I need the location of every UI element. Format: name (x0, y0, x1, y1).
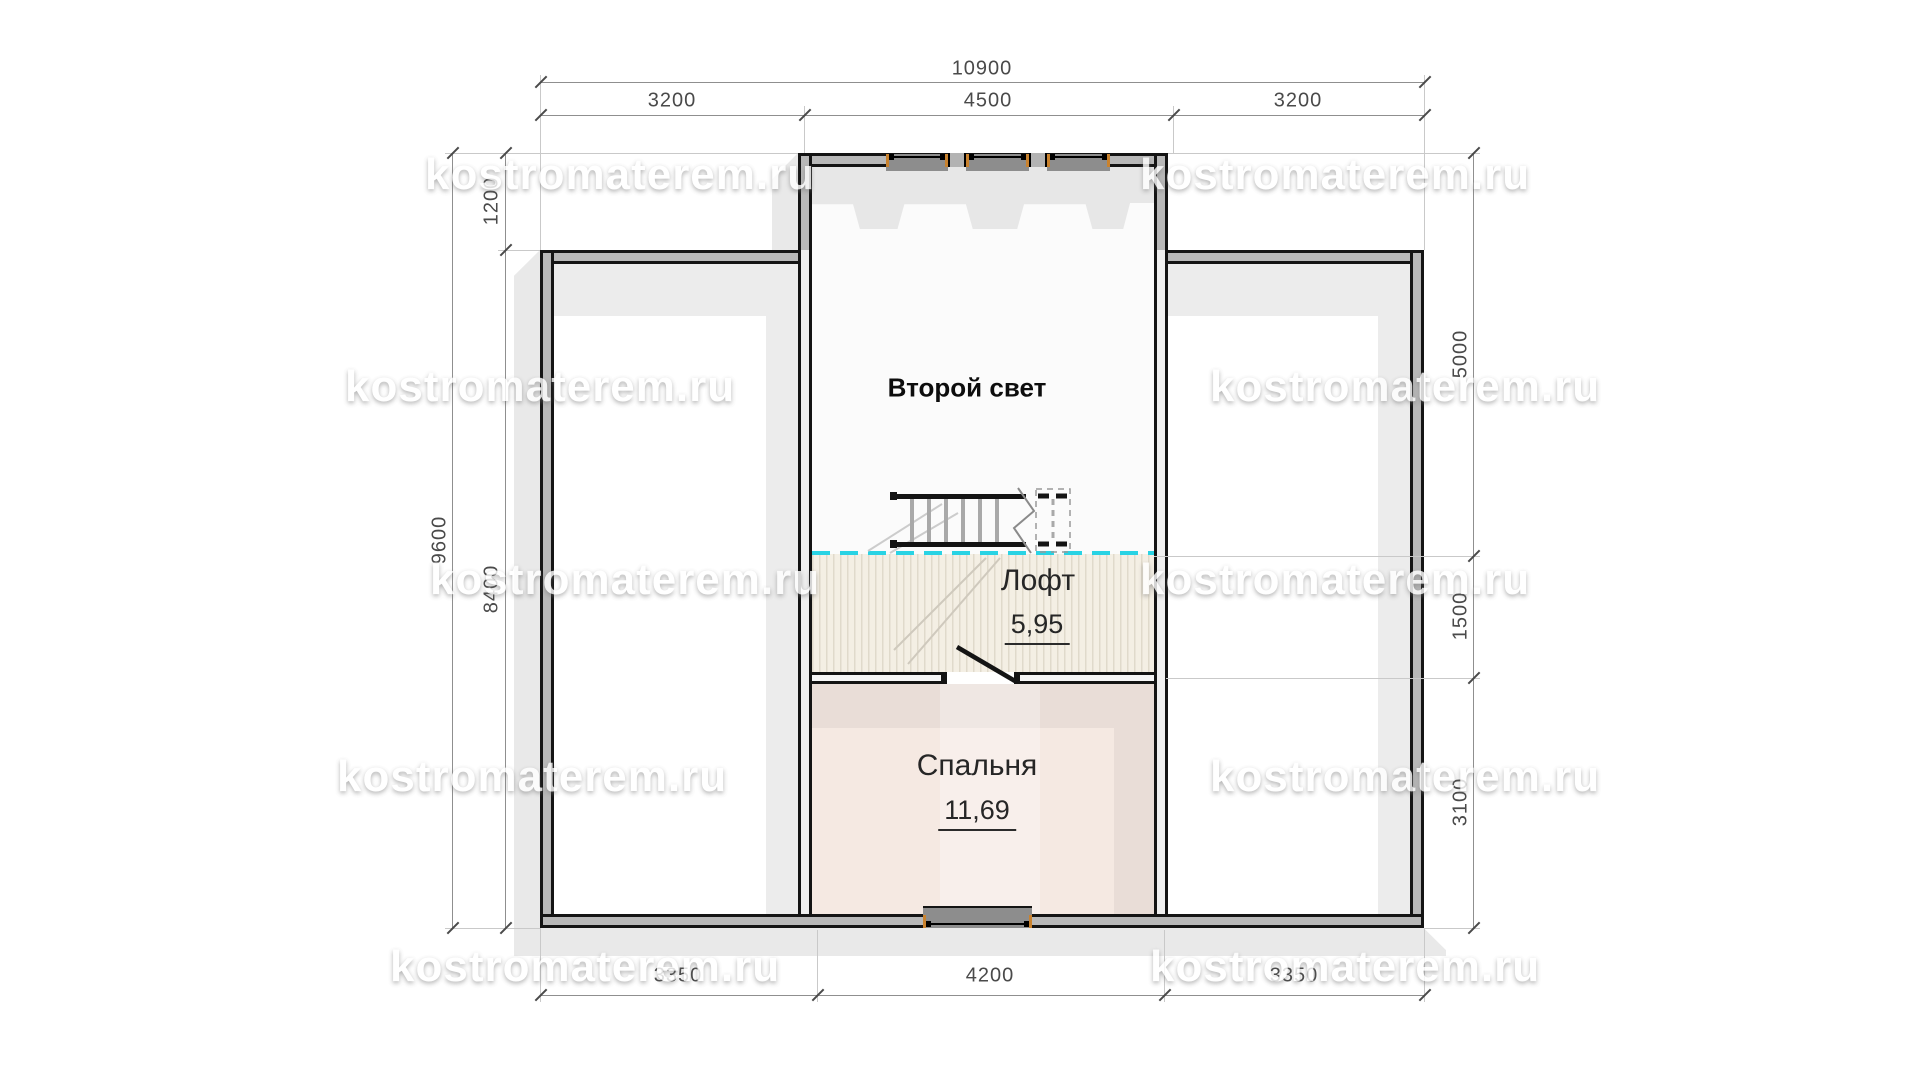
extension-line (540, 75, 541, 250)
dim-label-bottom-seg: 3350 (654, 965, 703, 988)
room-area-bedroom: 11,69 (938, 795, 1016, 831)
extension-line (1424, 928, 1425, 1002)
dim-label-left-lower: 8400 (481, 565, 504, 614)
dim-label-right-seg: 5000 (1450, 330, 1473, 379)
extension-line (445, 153, 798, 154)
door-leaf (957, 647, 1015, 681)
extension-line (1424, 75, 1425, 250)
dim-label-top-seg: 3200 (1274, 90, 1323, 113)
dim-label-right-seg: 1500 (1450, 592, 1473, 641)
dim-label-top-seg: 4500 (964, 90, 1013, 113)
dimension-line (540, 115, 1424, 116)
dim-label-left-upper: 1200 (481, 177, 504, 226)
extension-line (1168, 153, 1480, 154)
dim-label-right-seg: 3100 (1450, 778, 1473, 827)
staircase (890, 492, 1026, 548)
stair-and-door-overlay (0, 0, 1920, 1080)
sketch-line (894, 558, 986, 650)
dimension-line (540, 995, 1424, 996)
dim-label-bottom-seg: 4200 (966, 965, 1015, 988)
room-label-loft: Лофт (1001, 564, 1075, 598)
sketch-line (908, 558, 1000, 664)
room-area-loft: 5,95 (1005, 609, 1070, 645)
extension-line (817, 930, 818, 1002)
extension-line (1154, 556, 1480, 557)
extension-line (540, 928, 541, 1002)
dimension-line (1473, 153, 1474, 928)
extension-line (445, 928, 540, 929)
dim-label-top-total: 10900 (952, 58, 1013, 81)
staircase-dashed (1036, 489, 1070, 552)
room-label-second-light: Второй свет (888, 373, 1047, 404)
dim-label-top-seg: 3200 (648, 90, 697, 113)
extension-line (1166, 678, 1480, 679)
floor-plan-canvas: 10900 3200 4500 3200 9600 1200 8400 5000… (0, 0, 1920, 1080)
dimension-line (452, 153, 453, 928)
extension-line (1164, 930, 1165, 1002)
room-label-bedroom: Спальня (917, 749, 1038, 783)
dimension-line (540, 82, 1424, 83)
dim-label-left-total: 9600 (429, 516, 452, 565)
dim-label-bottom-seg: 3350 (1270, 965, 1319, 988)
dimension-line (505, 153, 506, 928)
